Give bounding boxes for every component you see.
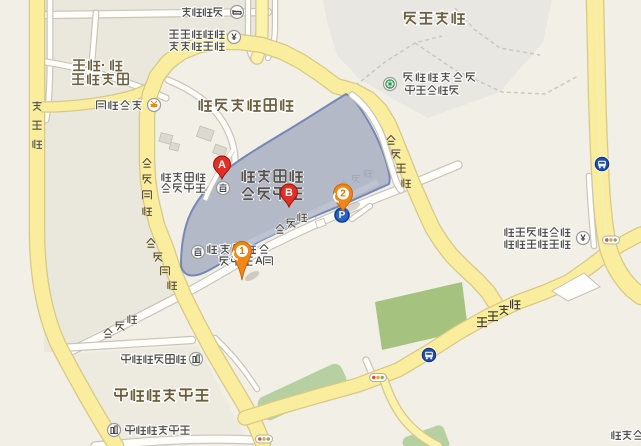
svg-text:P: P [339,210,346,221]
svg-text:2: 2 [340,189,346,200]
svg-text:¥: ¥ [580,233,586,244]
svg-text:¥: ¥ [231,32,237,43]
svg-text:1: 1 [239,246,245,257]
svg-text:B: B [285,187,293,199]
svg-text:A: A [218,159,226,171]
svg-text:A: A [255,255,263,267]
